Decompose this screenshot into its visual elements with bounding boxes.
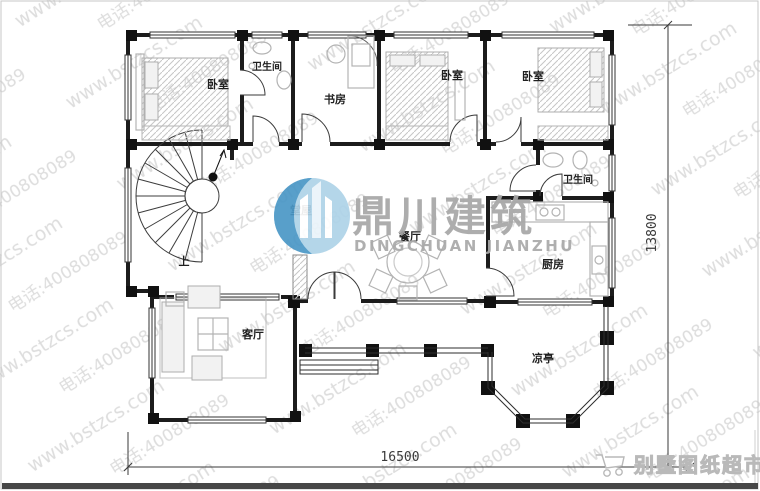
logo-en-text: DINGCHUAN JIANZHU <box>354 237 575 255</box>
logo-cn-text: 鼎川建筑 <box>352 192 536 241</box>
dingchuan-logo-icon <box>274 178 350 254</box>
floorplan-drawing: www.bstzcs.com 电话:400808089 <box>0 0 760 491</box>
dimension-width: 16500 <box>380 450 419 465</box>
label-bedroom-1: 卧室 <box>207 77 229 91</box>
label-pavilion: 凉亭 <box>532 351 554 365</box>
dimension-height: 13800 <box>645 213 660 252</box>
label-kitchen: 厨房 <box>542 257 564 271</box>
label-bedroom-3: 卧室 <box>522 69 544 83</box>
label-bathroom-2: 卫生间 <box>563 173 593 186</box>
site-brand: 别墅图纸超市 <box>596 453 760 477</box>
site-brand-text: 别墅图纸超市 <box>633 453 760 477</box>
label-stair-up: 上 <box>179 254 190 268</box>
floorplan-page: www.bstzcs.com 电话:400808089 <box>0 0 760 491</box>
label-bathroom-1: 卫生间 <box>252 60 282 73</box>
label-study: 书房 <box>324 92 346 106</box>
label-living: 客厅 <box>241 327 264 341</box>
bottom-bar <box>2 483 758 489</box>
label-bedroom-2: 卧室 <box>441 68 463 82</box>
